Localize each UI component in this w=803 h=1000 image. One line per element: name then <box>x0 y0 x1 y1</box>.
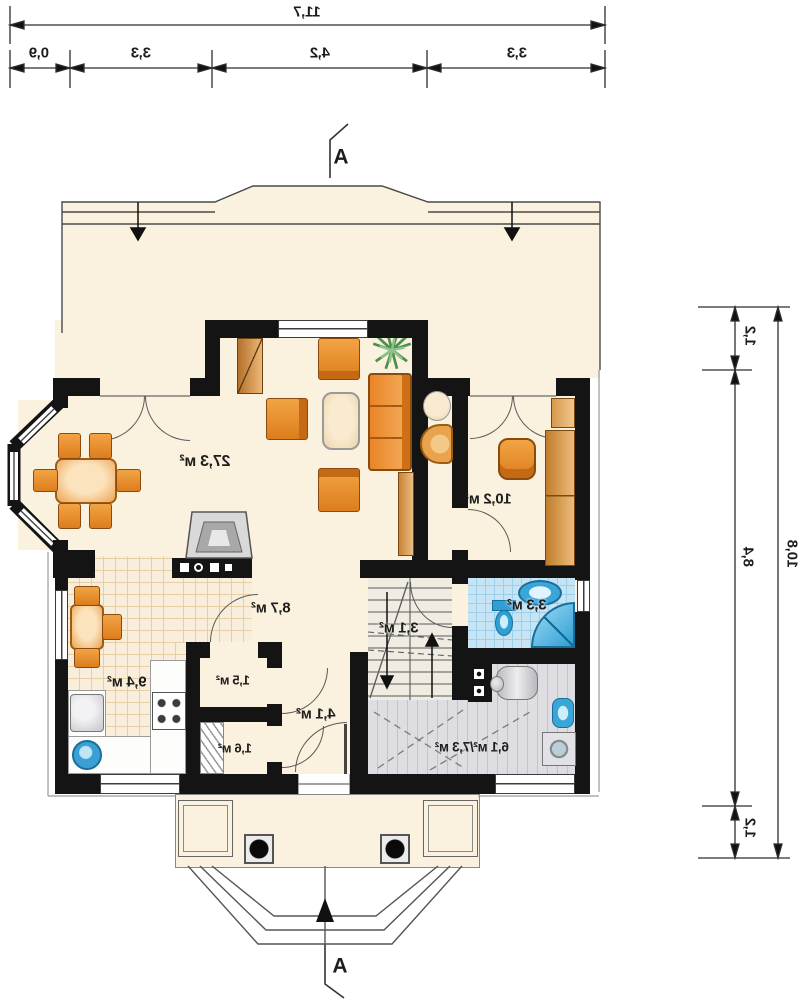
dim-right-segment: 1,2 <box>743 818 758 838</box>
wall <box>452 578 468 584</box>
dim-top-total: 11,7 <box>293 5 320 20</box>
wall <box>180 774 298 794</box>
wall <box>466 648 576 664</box>
toilet-bowl <box>495 610 513 636</box>
kitchen-chair <box>74 648 100 668</box>
coffee-table <box>322 392 360 450</box>
window <box>55 590 68 660</box>
porch-steps <box>188 866 462 944</box>
desk-shelf <box>551 398 575 428</box>
armchair <box>266 398 308 440</box>
tv-shelf <box>398 472 414 556</box>
room-area-label: 1,6 м² <box>218 742 252 755</box>
kitchen-chair <box>74 586 100 606</box>
room-area-label: 1,5 м² <box>216 674 250 687</box>
dining-chair <box>89 433 112 459</box>
dining-chair <box>89 503 112 529</box>
wall <box>452 550 468 560</box>
dim-top-segment: 3,3 <box>131 46 151 61</box>
front-door-leaf <box>344 724 347 774</box>
wall <box>267 652 282 668</box>
wall <box>350 774 495 794</box>
hearth-icon <box>210 563 219 572</box>
wardrobe <box>237 338 263 394</box>
planter-inner-border <box>183 805 228 852</box>
stove <box>152 692 186 730</box>
room-area-label: 8,7 м² <box>251 601 290 616</box>
washing-machine <box>542 732 576 766</box>
room-area-label: 3,3 м² <box>507 598 546 613</box>
wall <box>575 396 590 580</box>
dim-top-segment: 4,2 <box>310 46 330 61</box>
utility-sink <box>552 698 574 728</box>
planter <box>423 800 478 857</box>
wall <box>350 652 368 774</box>
fridge <box>70 694 104 732</box>
room-area-label: 10,2 м² <box>464 492 511 507</box>
office-chair <box>498 438 536 480</box>
wall <box>267 762 282 774</box>
wall <box>190 378 205 396</box>
room-area-label: 3,1 м² <box>379 621 418 636</box>
wall <box>556 378 590 396</box>
planter <box>178 800 233 857</box>
dimension-lines-right <box>698 307 790 858</box>
hearth-icon <box>180 563 189 572</box>
room-area-label: 4,1 м² <box>296 707 335 722</box>
dining-chair <box>58 433 81 459</box>
dining-chair <box>116 469 141 492</box>
terrace-bump-floor <box>215 186 428 204</box>
kitchen-sink <box>72 740 102 770</box>
section-marker-bottom: A <box>332 956 347 977</box>
planter-inner-border <box>428 805 473 852</box>
room-area-label: 27,3 м² <box>180 454 231 470</box>
wall <box>575 774 590 794</box>
tech-panel-icon <box>474 686 484 696</box>
kitchen-chair <box>102 614 122 640</box>
wall <box>53 394 68 408</box>
dim-top-segment: 0,9 <box>29 46 49 61</box>
window <box>100 774 180 794</box>
wicker-chair <box>420 424 453 464</box>
porch-column <box>380 834 410 864</box>
armchair <box>318 338 360 380</box>
dim-top-segment: 3,3 <box>507 46 527 61</box>
section-marker-top: A <box>333 147 348 168</box>
dining-chair <box>58 503 81 529</box>
armchair <box>318 468 360 512</box>
hearth-icon <box>194 563 203 572</box>
room-area-label: 9,4 м² <box>107 675 146 690</box>
wall <box>368 320 428 338</box>
room-area-label: 6,1 м²/7,3 м² <box>435 740 509 754</box>
dining-table <box>55 458 117 504</box>
hearth-icon <box>225 564 232 571</box>
window <box>278 320 368 338</box>
wall <box>267 704 282 726</box>
wall <box>575 612 590 774</box>
window <box>577 580 590 612</box>
wall <box>360 560 576 578</box>
dim-right-segment: 8,4 <box>741 547 756 567</box>
porch-entry-arrow <box>316 898 334 922</box>
floor-plan: 11,7 0,9 3,3 4,2 3,3 1,2 8,4 1,2 10,8 A … <box>0 0 803 1000</box>
porch-column <box>244 834 274 864</box>
boiler-pipe <box>490 676 504 692</box>
sofa <box>368 373 412 471</box>
side-table <box>423 391 451 421</box>
tech-panel-icon <box>474 669 484 679</box>
wall <box>55 660 68 774</box>
window <box>495 774 575 794</box>
kitchen-table <box>70 604 104 650</box>
dim-right-total: 10,8 <box>785 540 800 568</box>
wall <box>53 550 95 578</box>
wall <box>218 320 278 338</box>
fireplace <box>184 510 254 560</box>
dim-right-segment: 1,2 <box>743 326 758 346</box>
wall <box>205 320 220 396</box>
dining-chair <box>33 469 58 492</box>
desk <box>545 430 575 566</box>
utility-floor-understairs <box>368 700 468 774</box>
wall <box>55 774 100 794</box>
